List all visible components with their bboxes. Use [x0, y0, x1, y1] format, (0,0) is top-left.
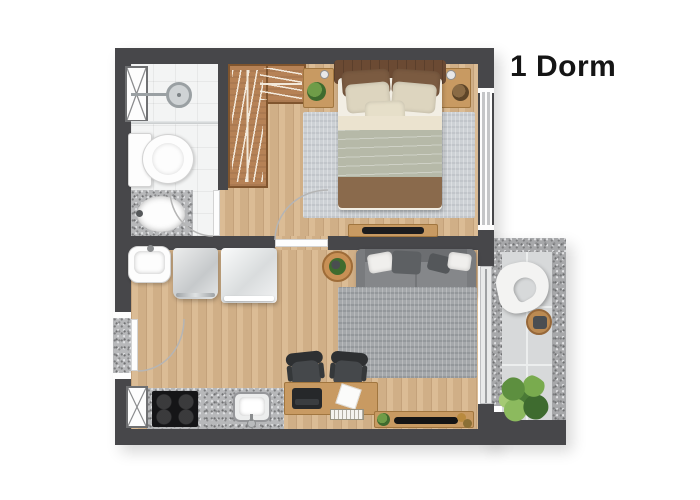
entrance-door-leaf	[131, 319, 138, 371]
laptop-keyboard	[295, 399, 319, 405]
balcony-sliding-door	[480, 266, 492, 404]
balcony-table	[526, 309, 552, 335]
sofa-pillow-white-right	[447, 251, 472, 271]
wall-bathroom-partition	[218, 48, 228, 190]
plan-title: 1 Dorm	[510, 50, 616, 84]
bathroom-door-leaf	[213, 190, 220, 236]
wall-balcony-stub-bottom	[478, 404, 494, 445]
sideboard-plant	[377, 413, 390, 426]
entrance-door-arc	[138, 319, 184, 371]
bathroom-door-arc	[170, 190, 213, 236]
laundry-tank-basin	[134, 251, 165, 274]
entrance-jamb-top	[113, 312, 131, 318]
desk-books	[330, 409, 364, 420]
bed-foot-runner	[338, 177, 442, 208]
shower-head-center	[177, 93, 181, 97]
bedroom-window	[480, 92, 492, 226]
side-table-plant	[329, 258, 346, 275]
sofa-pillow-gray-center	[391, 250, 421, 274]
balcony-door-glass-line	[485, 269, 487, 403]
sideboard-decor-2	[463, 419, 472, 428]
nightstand-right-lamp	[446, 70, 456, 80]
cooktop	[152, 391, 198, 427]
window-cap-bottom	[478, 225, 494, 230]
toilet-bowl	[142, 134, 194, 184]
washing-machine	[173, 248, 218, 299]
shower-arm	[131, 93, 169, 96]
refrigerator	[221, 248, 277, 303]
utility-shaft-kitchen	[126, 386, 148, 428]
balcony-border-right	[552, 252, 566, 422]
living-tv	[394, 417, 458, 424]
vanity-faucet	[136, 210, 143, 217]
entrance-jamb-bottom	[113, 373, 131, 379]
laptop	[292, 388, 322, 409]
shower-head-icon	[166, 82, 192, 108]
balcony-border-top	[494, 238, 566, 252]
laundry-tank-faucet	[147, 245, 154, 252]
wardrobe-hangers-vertical	[232, 70, 263, 182]
wardrobe-hangers-horizontal	[260, 68, 302, 100]
bed-blanket	[338, 130, 442, 178]
refrigerator-front-edge	[224, 296, 274, 301]
wall-bottom	[115, 429, 494, 445]
bedroom-door-leaf	[275, 239, 328, 247]
lounge-chair-seat	[509, 273, 540, 304]
balcony-table-tray	[533, 316, 547, 329]
wall-balcony-stub-top	[478, 236, 494, 266]
washing-machine-front-edge	[176, 293, 215, 297]
shaft-x-icon-2	[128, 388, 146, 426]
shower-glass-partition	[131, 121, 218, 124]
toilet-bowl-inner	[152, 143, 184, 175]
nightstand-left-plant	[307, 82, 326, 101]
entrance-threshold	[113, 317, 131, 374]
balcony-plant	[497, 374, 551, 424]
floor-plan: 1 Dorm	[0, 0, 700, 500]
kitchen-faucet-stem	[250, 414, 253, 421]
bedroom-tv	[362, 227, 424, 234]
nightstand-left-lamp	[320, 70, 329, 79]
laundry-tank	[128, 246, 171, 283]
bedroom-door-arc	[275, 190, 328, 240]
nightstand-right-plant	[452, 84, 469, 101]
wall-divider-right	[328, 236, 494, 250]
